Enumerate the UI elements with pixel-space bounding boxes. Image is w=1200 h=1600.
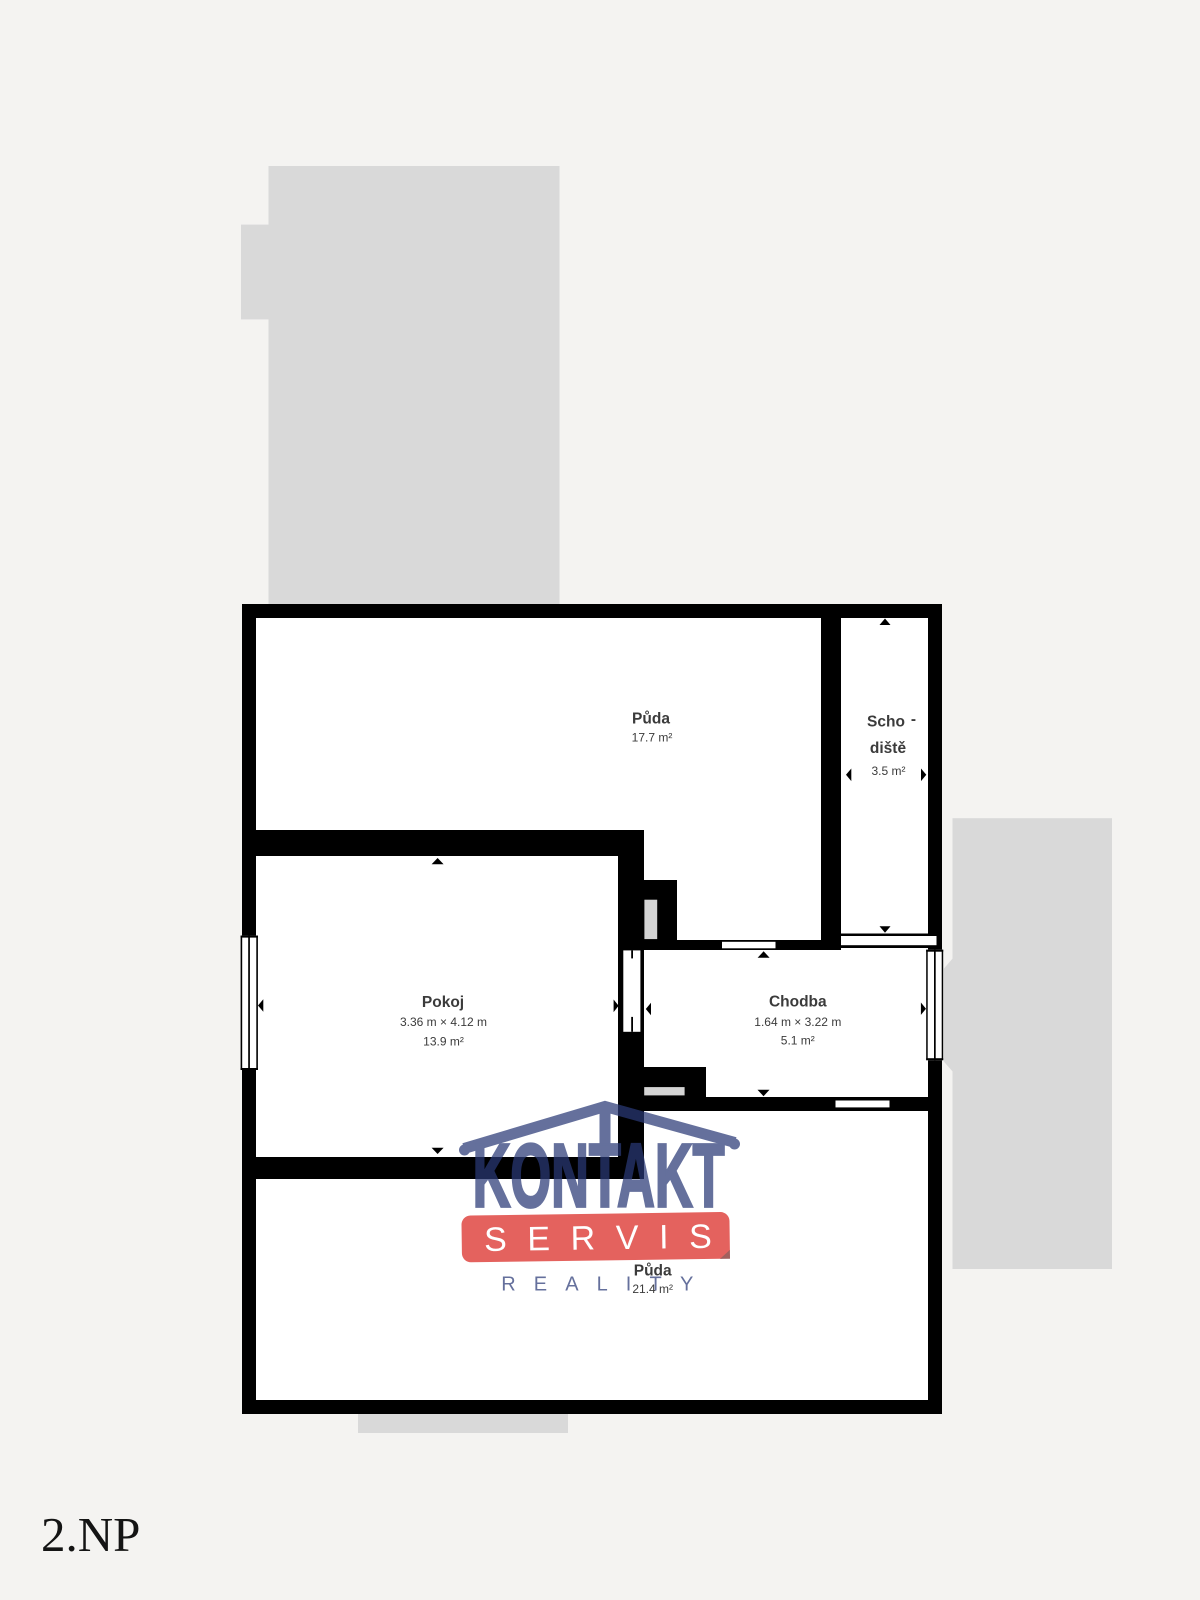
svg-text:KONTAKT: KONTAKT [473,1127,725,1227]
svg-text:diště: diště [870,740,907,757]
svg-text:Scho: Scho [867,713,905,730]
svg-text:3.36 m × 4.12 m: 3.36 m × 4.12 m [400,1015,487,1029]
svg-text:E: E [527,1220,550,1258]
svg-text:S: S [484,1221,507,1259]
svg-text:Y: Y [680,1273,693,1295]
svg-text:S: S [689,1218,712,1256]
svg-text:A: A [565,1273,579,1295]
svg-text:-: - [911,711,916,728]
svg-text:L: L [597,1273,608,1295]
svg-text:3.5 m²: 3.5 m² [871,764,905,778]
svg-text:I: I [626,1273,632,1295]
svg-text:V: V [616,1219,640,1257]
svg-text:I: I [659,1218,669,1256]
svg-text:17.7 m²: 17.7 m² [632,731,673,745]
svg-text:2.NP: 2.NP [41,1507,140,1562]
svg-text:E: E [534,1273,547,1295]
svg-text:Půda: Půda [632,710,670,727]
svg-text:Půda: Půda [634,1262,672,1279]
svg-text:R: R [501,1273,515,1295]
svg-text:Chodba: Chodba [769,993,827,1010]
svg-text:1.64 m × 3.22 m: 1.64 m × 3.22 m [754,1015,841,1029]
svg-text:13.9 m²: 13.9 m² [423,1035,464,1049]
svg-text:R: R [570,1219,595,1257]
svg-text:21.4 m²: 21.4 m² [632,1282,673,1296]
svg-text:Pokoj: Pokoj [422,994,464,1011]
svg-text:5.1 m²: 5.1 m² [781,1033,815,1047]
